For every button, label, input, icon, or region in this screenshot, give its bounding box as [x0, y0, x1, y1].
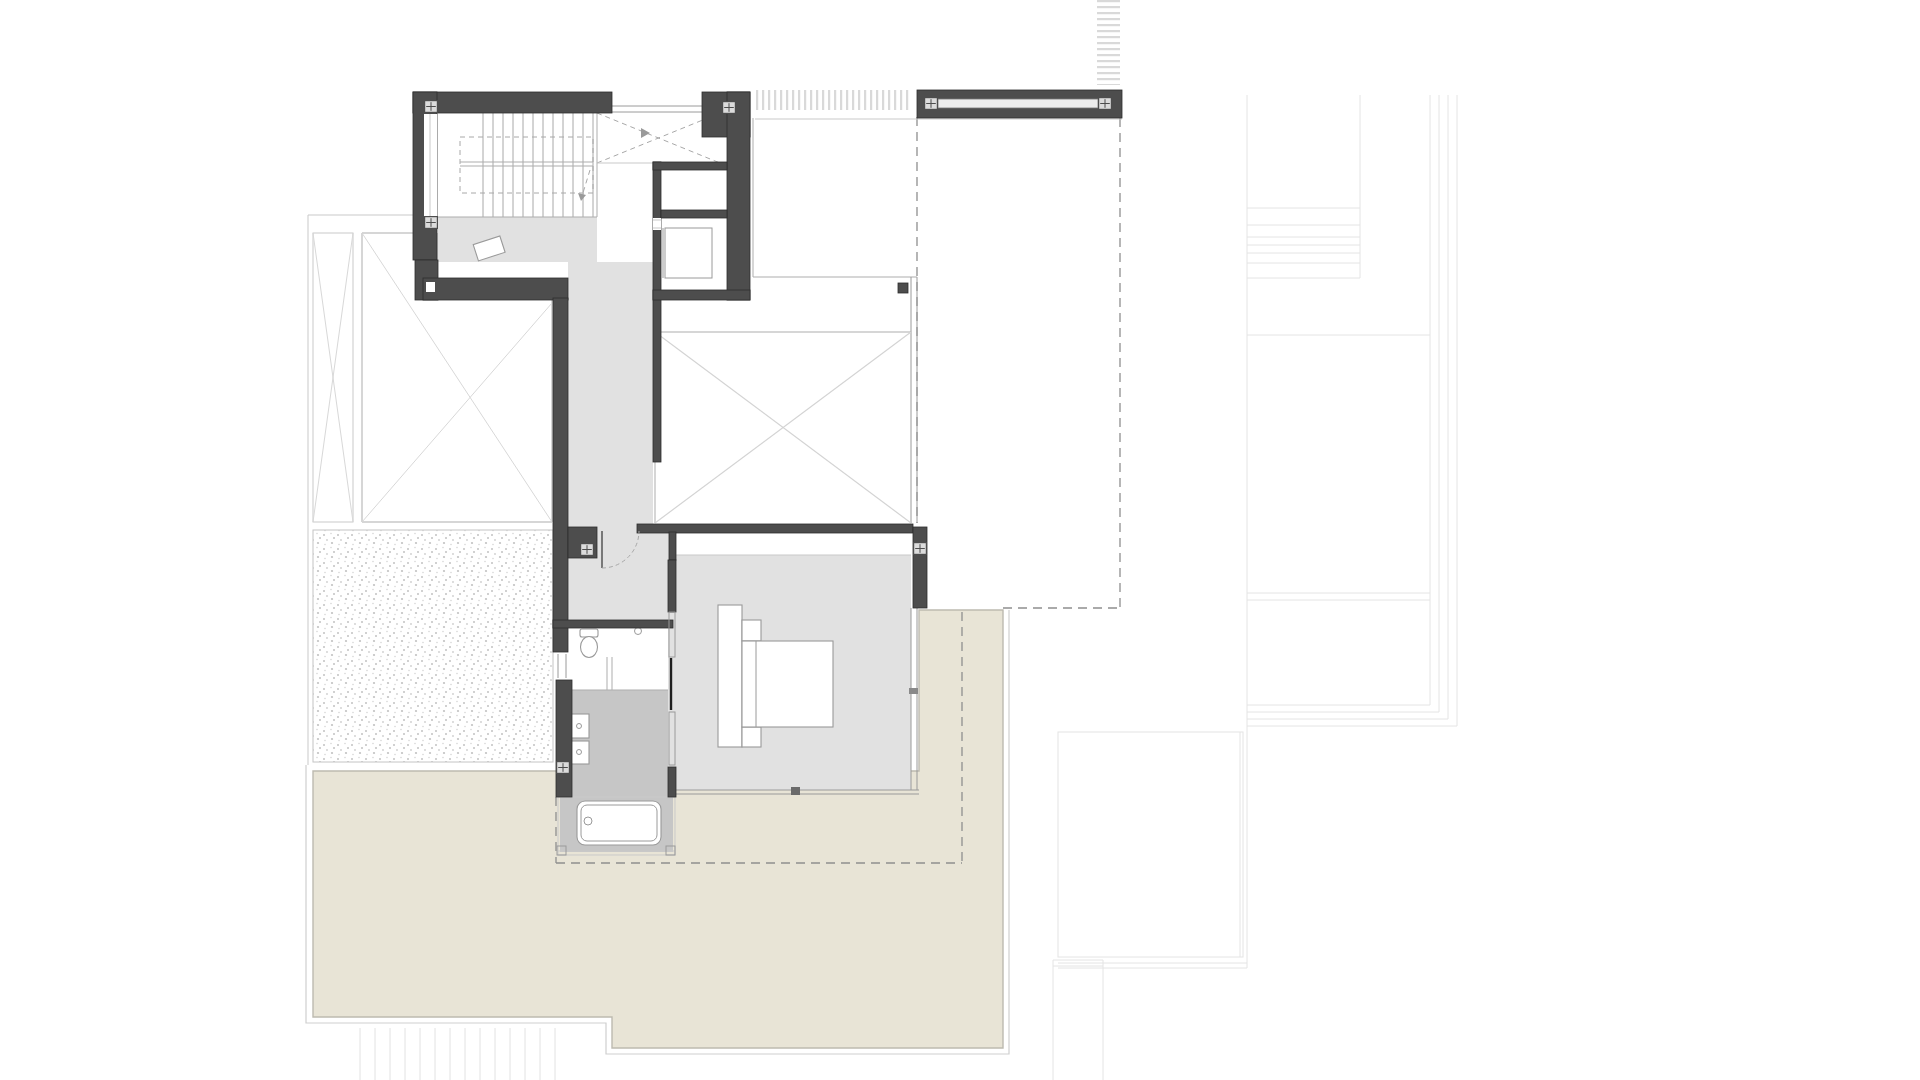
elevator-block — [653, 92, 750, 462]
roof-beam — [917, 90, 1122, 118]
pergola-louvers — [755, 90, 910, 110]
mullion — [791, 787, 800, 795]
column-marker — [723, 102, 736, 114]
trellis-strip — [1097, 0, 1120, 85]
bathroom — [568, 628, 668, 798]
column-marker — [425, 101, 438, 113]
nightstand — [742, 727, 761, 747]
wall-bedroom-east — [913, 527, 927, 608]
column-marker — [925, 98, 938, 110]
stair-treads — [483, 113, 593, 217]
terrace-retaining-walls — [1247, 95, 1457, 726]
wall-stair-north — [413, 92, 612, 113]
exterior-steps — [360, 1028, 555, 1080]
elevator-car — [663, 228, 712, 278]
wall-bath-north — [553, 620, 673, 628]
site-steps-upper — [1247, 208, 1360, 278]
steel-column — [898, 283, 908, 293]
gravel-courtyard — [313, 530, 553, 762]
neighbor-pool — [1053, 732, 1247, 1080]
wall-hall-west — [553, 298, 568, 652]
column-marker — [1099, 98, 1112, 110]
column-marker — [425, 217, 438, 229]
central-void-room — [655, 118, 917, 523]
nightstand — [742, 620, 761, 641]
column-marker — [581, 544, 594, 556]
column-marker — [914, 543, 927, 555]
wall-bath-west — [556, 680, 572, 797]
upper-corridor-floor — [438, 217, 597, 262]
site-terracing — [1053, 95, 1457, 1080]
wall-bedroom-north — [637, 524, 913, 533]
toilet — [580, 629, 598, 658]
headboard — [718, 605, 742, 747]
bathtub — [577, 801, 661, 845]
mullion — [909, 688, 918, 694]
column-marker — [557, 762, 570, 774]
bath-alcove — [557, 797, 675, 855]
wardrobe-band — [675, 532, 911, 555]
hallway-floor — [568, 262, 653, 527]
wall-corridor-south — [423, 278, 568, 300]
stair-direction-arrow — [578, 128, 650, 201]
wall-bath-east — [668, 560, 676, 612]
floor-plan-canvas — [0, 0, 1920, 1080]
floor-plan-drawing — [0, 0, 1920, 1080]
large-void-room — [362, 233, 552, 522]
void-over-stairs — [597, 113, 720, 163]
